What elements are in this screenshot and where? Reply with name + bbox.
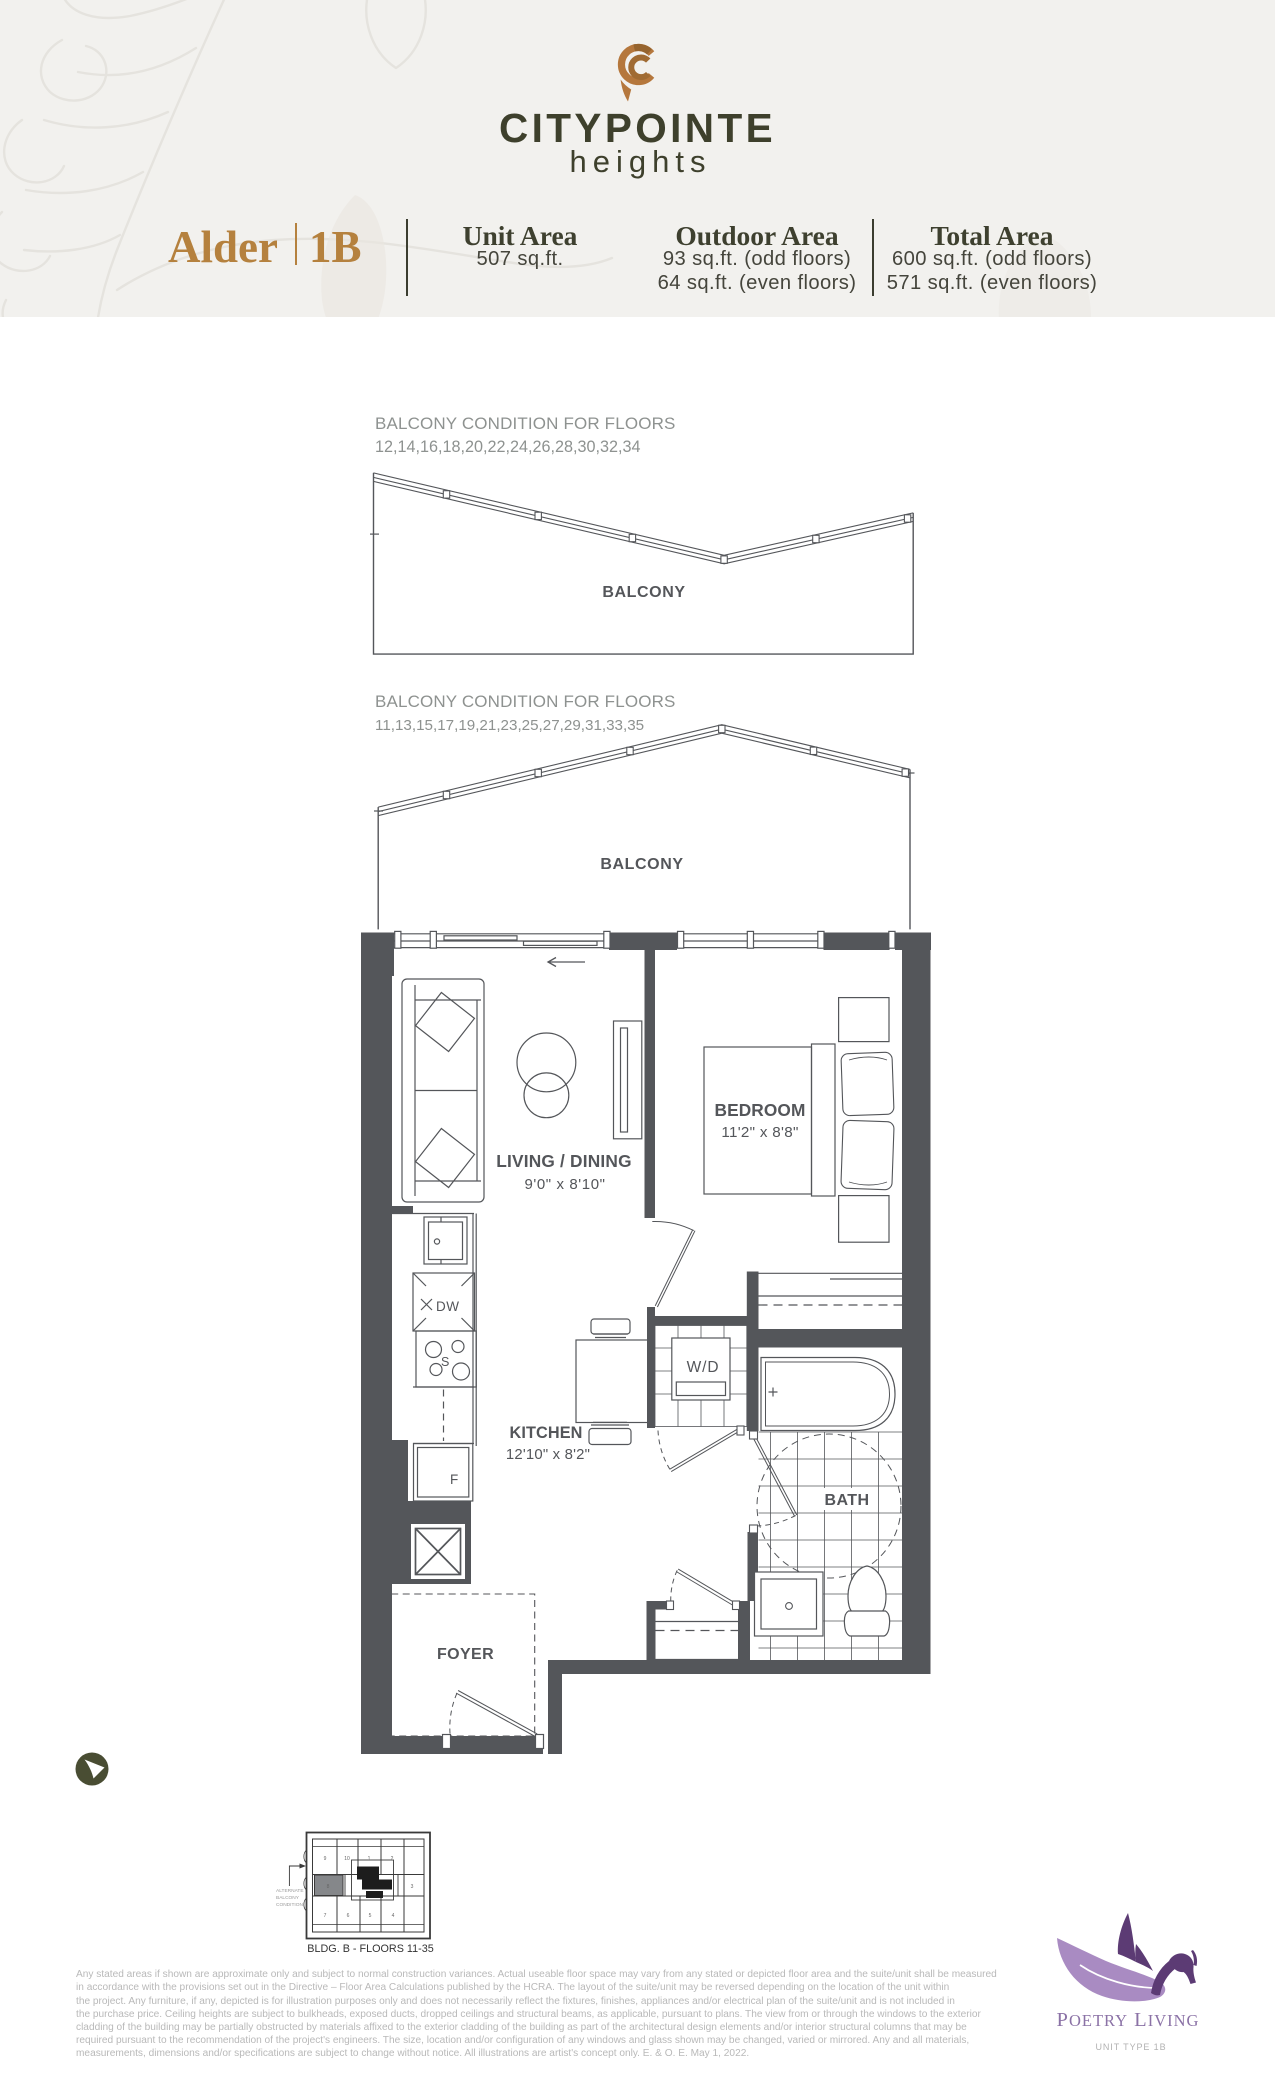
svg-text:11'2" x 8'8": 11'2" x 8'8"	[721, 1124, 798, 1141]
svg-text:POETRY LIVING: POETRY LIVING	[1057, 2009, 1200, 2031]
svg-text:8: 8	[327, 1884, 330, 1890]
svg-text:BALCONY: BALCONY	[276, 1895, 300, 1901]
svg-text:LIVING / DINING: LIVING / DINING	[496, 1151, 632, 1171]
svg-text:CONDITION: CONDITION	[276, 1902, 303, 1908]
svg-text:BEDROOM: BEDROOM	[715, 1100, 806, 1120]
svg-text:BALCONY CONDITION FOR FLOORS: BALCONY CONDITION FOR FLOORS	[375, 692, 675, 711]
svg-text:7: 7	[324, 1913, 327, 1919]
svg-text:F: F	[450, 1472, 458, 1487]
svg-text:5: 5	[369, 1913, 372, 1919]
svg-text:2: 2	[391, 1856, 394, 1862]
svg-text:6: 6	[347, 1913, 350, 1919]
svg-text:10: 10	[344, 1856, 350, 1862]
svg-text:KITCHEN: KITCHEN	[509, 1424, 582, 1442]
svg-text:UNIT TYPE 1B: UNIT TYPE 1B	[1096, 2042, 1167, 2052]
svg-text:9'0" x 8'10": 9'0" x 8'10"	[524, 1176, 605, 1193]
svg-text:BATH: BATH	[824, 1492, 869, 1509]
svg-text:3: 3	[411, 1884, 414, 1890]
svg-text:12'10" x 8'2": 12'10" x 8'2"	[506, 1447, 590, 1463]
svg-text:BALCONY: BALCONY	[600, 856, 683, 873]
svg-text:FOYER: FOYER	[437, 1646, 494, 1663]
svg-text:DW: DW	[436, 1299, 460, 1314]
svg-text:BLDG. B - FLOORS 11-35: BLDG. B - FLOORS 11-35	[307, 1943, 433, 1955]
svg-text:S: S	[441, 1355, 449, 1369]
svg-text:11,13,15,17,19,21,23,25,27,29,: 11,13,15,17,19,21,23,25,27,29,31,33,35	[375, 717, 644, 734]
svg-text:BALCONY: BALCONY	[602, 584, 685, 601]
svg-text:9: 9	[324, 1856, 327, 1862]
svg-text:W/D: W/D	[687, 1359, 720, 1376]
svg-text:12,14,16,18,20,22,24,26,28,30,: 12,14,16,18,20,22,24,26,28,30,32,34	[375, 438, 641, 456]
svg-text:BALCONY CONDITION FOR FLOORS: BALCONY CONDITION FOR FLOORS	[375, 414, 675, 433]
svg-text:ALTERNATE: ALTERNATE	[276, 1888, 304, 1894]
svg-text:1: 1	[368, 1856, 371, 1862]
svg-text:4: 4	[392, 1913, 395, 1919]
